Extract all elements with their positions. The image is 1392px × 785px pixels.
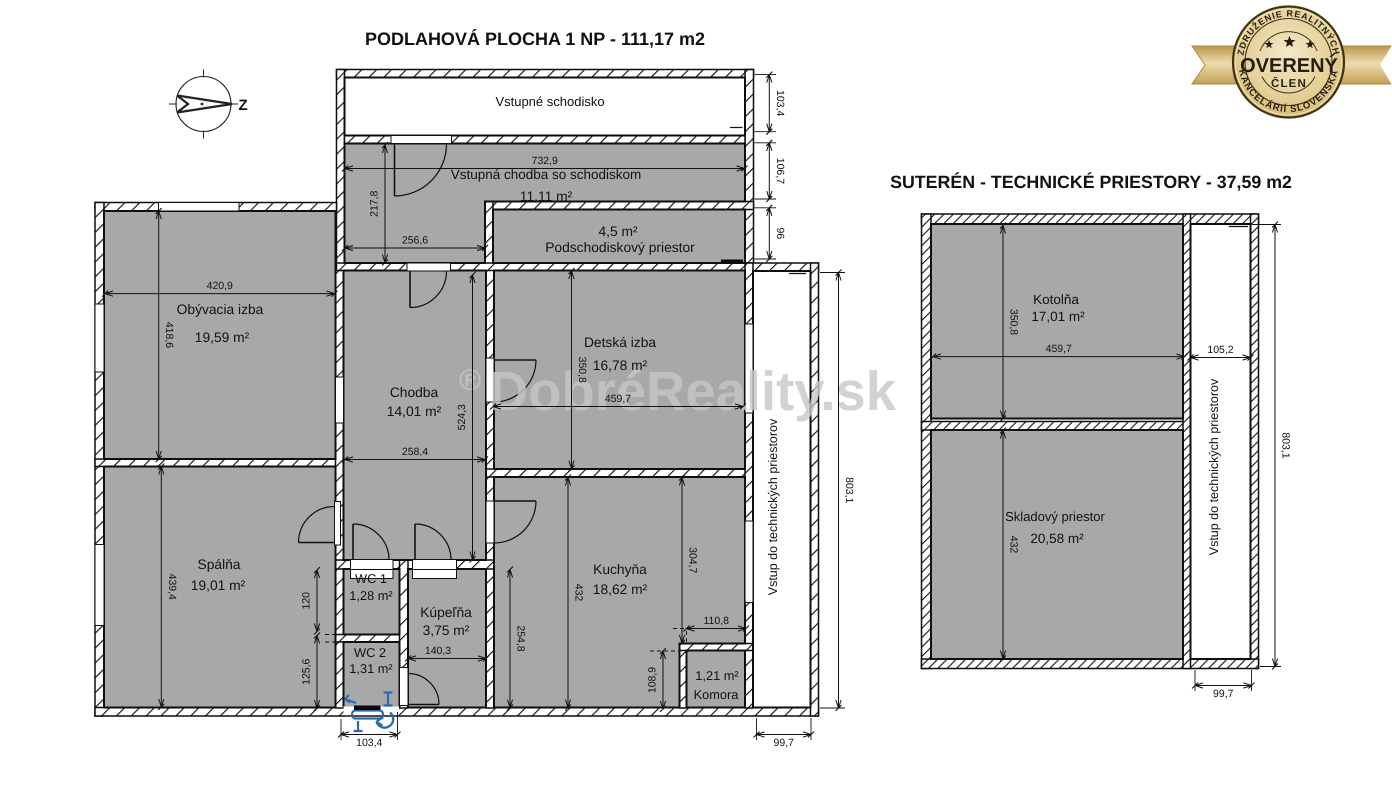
- svg-text:350,8: 350,8: [576, 357, 588, 383]
- svg-text:99,7: 99,7: [774, 737, 795, 749]
- svg-text:254,8: 254,8: [515, 625, 527, 651]
- svg-text:Vstupné schodisko: Vstupné schodisko: [495, 94, 604, 109]
- svg-text:105,2: 105,2: [1207, 344, 1233, 356]
- svg-text:350,8: 350,8: [1008, 309, 1020, 335]
- svg-text:Spálňa: Spálňa: [198, 557, 241, 572]
- svg-text:PODLAHOVÁ PLOCHA 1 NP - 111,17: PODLAHOVÁ PLOCHA 1 NP - 111,17 m2: [365, 29, 705, 49]
- svg-text:Komora: Komora: [694, 687, 740, 702]
- svg-text:16,78 m²: 16,78 m²: [593, 358, 648, 373]
- svg-text:Kotolňa: Kotolňa: [1033, 292, 1079, 307]
- svg-text:14,01 m²: 14,01 m²: [387, 404, 442, 419]
- svg-text:WC 2: WC 2: [354, 645, 386, 660]
- svg-text:SUTERÉN - TECHNICKÉ PRIESTORY: SUTERÉN - TECHNICKÉ PRIESTORY - 37,59 m2: [890, 172, 1292, 192]
- svg-text:ČLEN: ČLEN: [1271, 76, 1307, 90]
- svg-text:304,7: 304,7: [687, 547, 699, 573]
- svg-text:96: 96: [774, 228, 786, 240]
- svg-text:103,4: 103,4: [356, 737, 382, 749]
- svg-text:1,21 m²: 1,21 m²: [695, 668, 739, 683]
- svg-text:258,4: 258,4: [402, 446, 428, 458]
- svg-text:459,7: 459,7: [1046, 343, 1072, 355]
- svg-text:19,59 m²: 19,59 m²: [195, 330, 250, 345]
- svg-text:11,11 m²: 11,11 m²: [520, 189, 573, 204]
- svg-text:OVERENÝ: OVERENÝ: [1240, 54, 1338, 77]
- svg-text:1,31 m²: 1,31 m²: [349, 661, 393, 676]
- svg-text:Kúpeľňa: Kúpeľňa: [420, 605, 472, 620]
- svg-text:Z: Z: [239, 97, 248, 114]
- svg-text:3,75 m²: 3,75 m²: [423, 623, 470, 638]
- svg-text:459,7: 459,7: [605, 393, 631, 405]
- svg-text:20,58 m²: 20,58 m²: [1030, 531, 1084, 546]
- svg-text:19,01 m²: 19,01 m²: [191, 578, 246, 593]
- svg-text:432: 432: [1008, 536, 1020, 554]
- svg-text:803,1: 803,1: [1280, 432, 1292, 458]
- svg-text:106,7: 106,7: [774, 158, 786, 184]
- svg-text:524,3: 524,3: [456, 404, 468, 430]
- svg-text:108,9: 108,9: [647, 667, 659, 693]
- svg-text:432: 432: [573, 584, 585, 602]
- svg-text:420,9: 420,9: [207, 280, 233, 292]
- svg-text:120: 120: [301, 592, 313, 610]
- svg-text:103,4: 103,4: [774, 90, 786, 116]
- svg-text:732,9: 732,9: [532, 155, 558, 167]
- svg-text:217,8: 217,8: [369, 190, 381, 216]
- svg-text:Skladový priestor: Skladový priestor: [1005, 509, 1105, 524]
- svg-text:4,5 m²: 4,5 m²: [598, 224, 638, 239]
- svg-text:17,01 m²: 17,01 m²: [1031, 309, 1085, 324]
- svg-text:Chodba: Chodba: [390, 385, 439, 400]
- svg-text:418,6: 418,6: [163, 322, 175, 348]
- svg-text:803,1: 803,1: [843, 477, 855, 503]
- svg-text:140,3: 140,3: [425, 645, 451, 657]
- svg-text:Vstup do technických priestoro: Vstup do technických priestorov: [1207, 378, 1221, 555]
- svg-text:®: ®: [459, 364, 481, 397]
- svg-text:18,62 m²: 18,62 m²: [593, 582, 648, 597]
- svg-text:Vstup do technických priestoro: Vstup do technických priestorov: [766, 418, 780, 595]
- svg-text:439,4: 439,4: [166, 574, 178, 600]
- svg-text:Detská izba: Detská izba: [584, 335, 656, 350]
- svg-text:256,6: 256,6: [402, 235, 428, 247]
- svg-text:1,28 m²: 1,28 m²: [349, 588, 393, 603]
- svg-text:Obývacia izba: Obývacia izba: [177, 302, 264, 317]
- svg-text:Kuchyňa: Kuchyňa: [593, 562, 647, 577]
- svg-text:110,8: 110,8: [704, 615, 730, 627]
- svg-text:99,7: 99,7: [1213, 688, 1234, 700]
- svg-text:Podschodiskový priestor: Podschodiskový priestor: [545, 240, 695, 255]
- svg-text:DobréReality.sk: DobréReality.sk: [489, 360, 896, 422]
- svg-text:125,6: 125,6: [301, 658, 313, 684]
- svg-text:WC 1: WC 1: [355, 571, 387, 586]
- svg-text:Vstupná chodba so schodiskom: Vstupná chodba so schodiskom: [451, 167, 642, 182]
